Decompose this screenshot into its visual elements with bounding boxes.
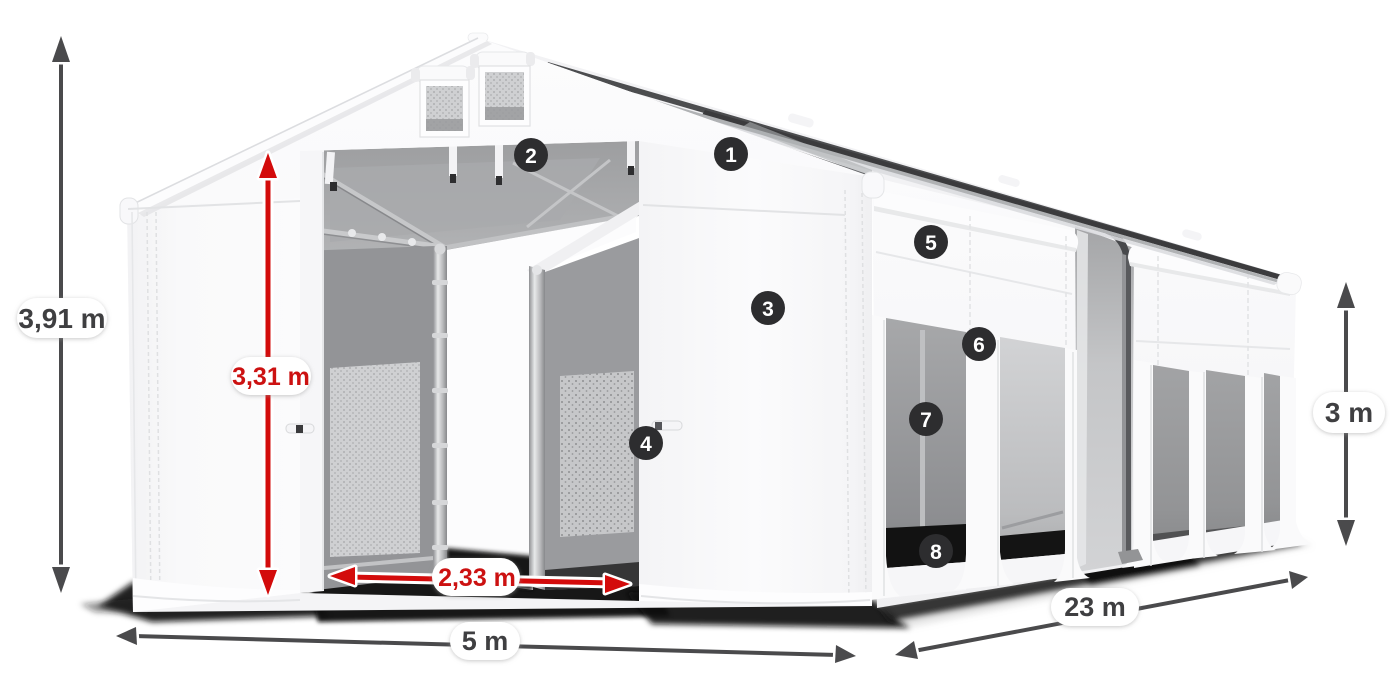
svg-text:5: 5 [925, 232, 937, 255]
svg-text:1: 1 [725, 144, 737, 167]
svg-text:23 m: 23 m [1064, 592, 1126, 622]
svg-text:2: 2 [525, 145, 537, 168]
svg-text:3 m: 3 m [1325, 397, 1373, 428]
svg-text:7: 7 [920, 409, 932, 432]
svg-text:3,31 m: 3,31 m [232, 363, 310, 391]
svg-text:3: 3 [762, 298, 774, 321]
svg-text:5 m: 5 m [462, 626, 509, 656]
svg-text:2,33 m: 2,33 m [438, 564, 516, 592]
svg-text:6: 6 [973, 334, 985, 357]
svg-text:8: 8 [930, 541, 942, 564]
svg-text:4: 4 [640, 433, 652, 456]
svg-text:3,91 m: 3,91 m [18, 303, 105, 334]
